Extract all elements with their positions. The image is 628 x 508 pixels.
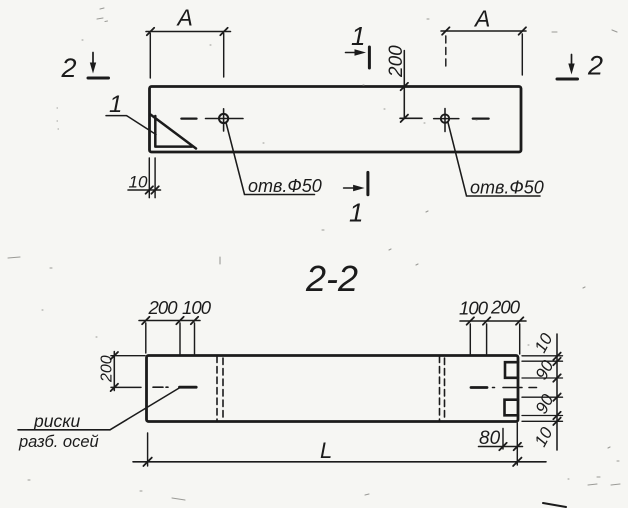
svg-text:1: 1 <box>109 91 122 118</box>
svg-text:риски: риски <box>33 411 80 431</box>
svg-text:10: 10 <box>129 173 148 192</box>
svg-text:100: 100 <box>182 297 212 318</box>
svg-text:L: L <box>320 438 332 463</box>
svg-text:разб. осей: разб. осей <box>18 433 99 451</box>
svg-text:отв.Ф50: отв.Ф50 <box>470 178 544 198</box>
svg-text:отв.Ф50: отв.Ф50 <box>248 176 322 196</box>
svg-text:1: 1 <box>351 21 365 51</box>
svg-text:2-2: 2-2 <box>305 258 358 299</box>
svg-text:100: 100 <box>459 298 489 319</box>
svg-text:200: 200 <box>490 297 521 318</box>
svg-text:2: 2 <box>587 51 603 81</box>
svg-text:200: 200 <box>386 45 407 78</box>
svg-text:A: A <box>473 6 490 32</box>
svg-text:1: 1 <box>349 198 363 228</box>
svg-text:80: 80 <box>479 428 501 449</box>
svg-text:2: 2 <box>61 53 77 83</box>
svg-text:200: 200 <box>99 355 116 383</box>
svg-text:200: 200 <box>148 297 179 318</box>
svg-text:A: A <box>176 5 193 31</box>
